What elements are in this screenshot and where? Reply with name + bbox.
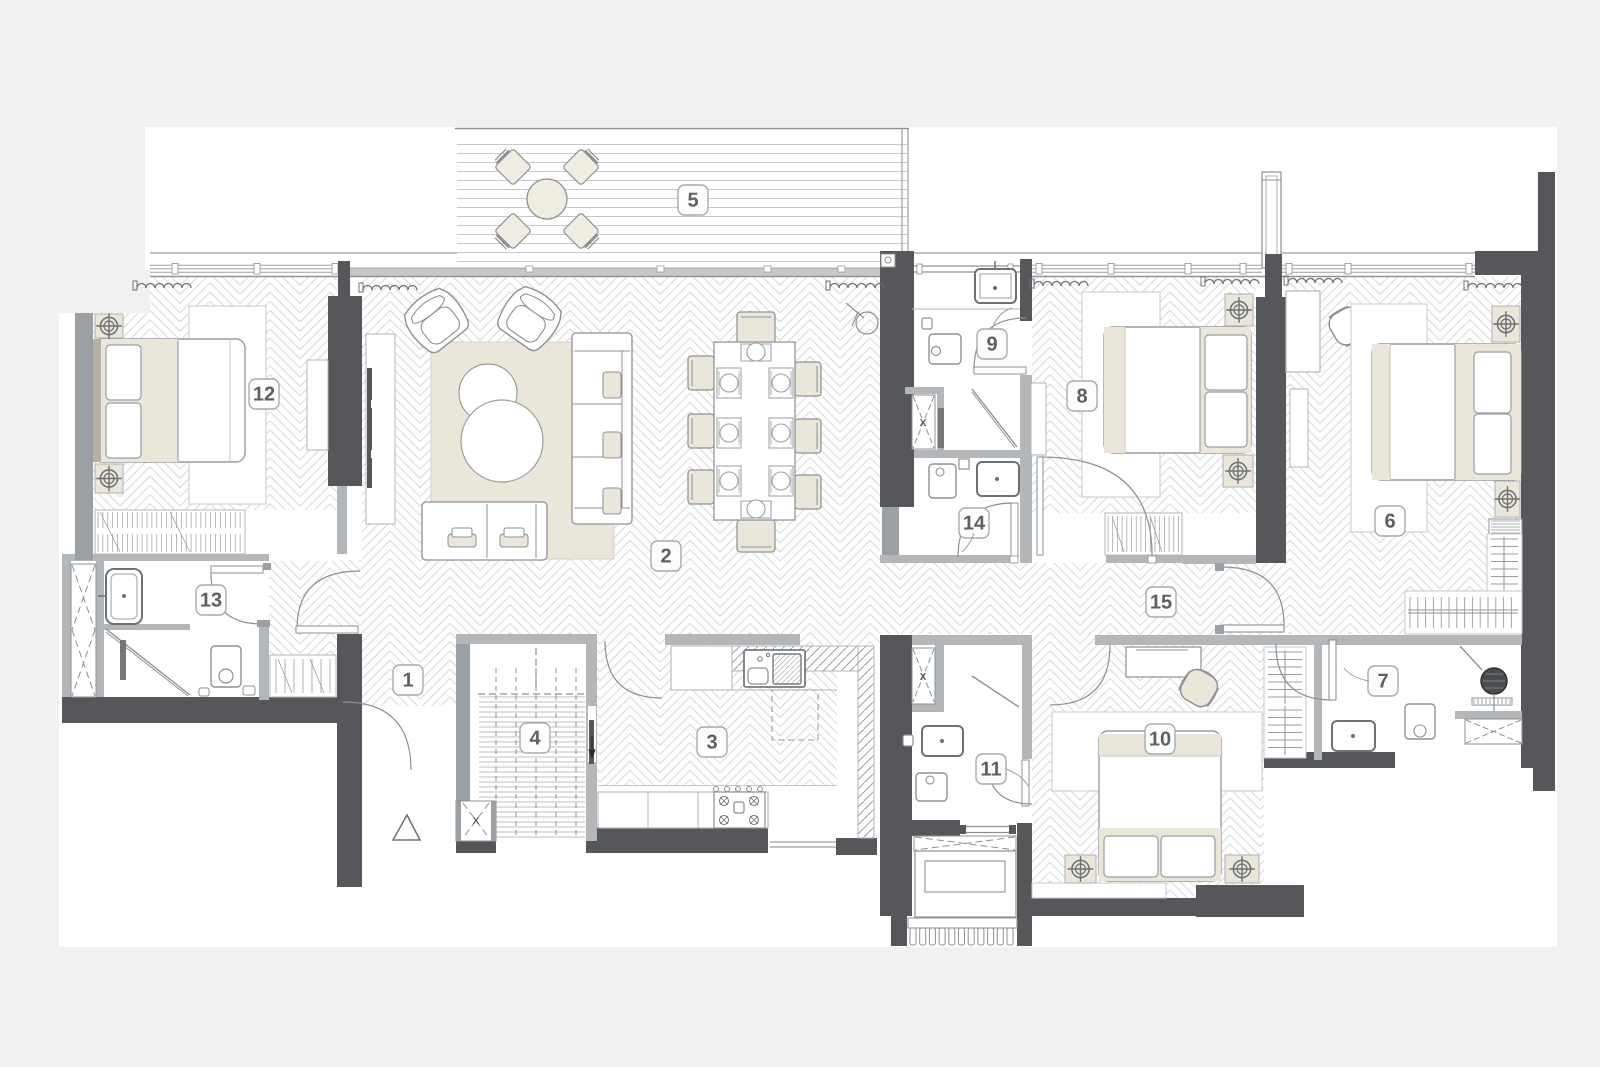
svg-text:7: 7 xyxy=(1377,671,1388,693)
svg-text:3: 3 xyxy=(706,732,717,754)
svg-text:2: 2 xyxy=(660,546,671,568)
svg-text:9: 9 xyxy=(986,334,997,356)
svg-text:14: 14 xyxy=(963,513,986,535)
svg-text:X: X xyxy=(473,816,480,827)
svg-text:6: 6 xyxy=(1384,511,1395,533)
svg-text:15: 15 xyxy=(1150,592,1172,614)
svg-text:1: 1 xyxy=(402,670,413,692)
svg-text:8: 8 xyxy=(1076,386,1087,408)
svg-text:X: X xyxy=(920,418,927,429)
svg-text:10: 10 xyxy=(1149,729,1171,751)
svg-text:11: 11 xyxy=(980,759,1001,781)
svg-text:X: X xyxy=(920,672,927,683)
svg-text:5: 5 xyxy=(687,190,698,212)
svg-text:13: 13 xyxy=(200,590,222,612)
svg-text:12: 12 xyxy=(253,384,275,406)
svg-text:4: 4 xyxy=(529,728,541,750)
